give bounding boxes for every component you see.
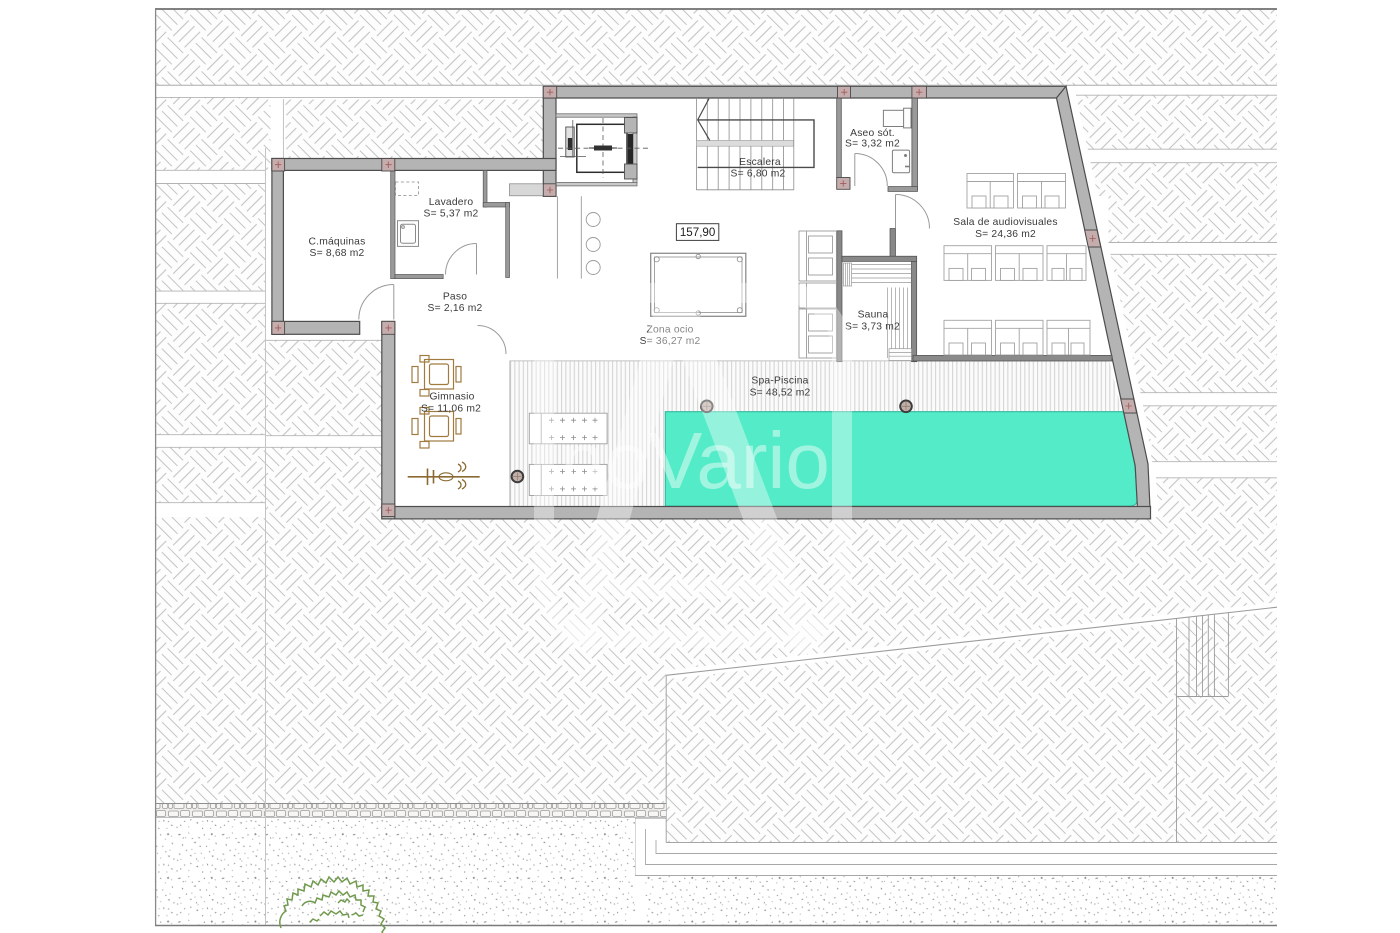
svg-text:S= 8,68 m2: S= 8,68 m2: [310, 248, 365, 259]
svg-text:S= 11,06 m2: S= 11,06 m2: [421, 404, 481, 415]
svg-text:Aseo sót.: Aseo sót.: [850, 128, 895, 139]
svg-text:Gimnasio: Gimnasio: [429, 392, 474, 403]
svg-text:S= 3,32 m2: S= 3,32 m2: [845, 139, 900, 150]
svg-text:C.máquinas: C.máquinas: [309, 237, 366, 248]
svg-text:S= 24,36 m2: S= 24,36 m2: [975, 229, 1036, 240]
svg-text:Sauna: Sauna: [858, 310, 889, 321]
svg-text:Paso: Paso: [443, 292, 467, 303]
svg-text:S= 5,37 m2: S= 5,37 m2: [424, 209, 479, 220]
svg-text:S= 6,80 m2: S= 6,80 m2: [731, 169, 786, 180]
svg-text:Lavadero: Lavadero: [429, 197, 474, 208]
svg-text:S= 3,73 m2: S= 3,73 m2: [845, 322, 900, 333]
svg-text:157,90: 157,90: [680, 226, 715, 239]
svg-text:noVario: noVario: [560, 416, 830, 505]
svg-text:Sala de audiovisuales: Sala de audiovisuales: [953, 217, 1057, 228]
svg-text:S= 48,52 m2: S= 48,52 m2: [750, 388, 811, 399]
svg-text:S= 2,16 m2: S= 2,16 m2: [428, 303, 483, 314]
svg-text:Spa-Piscina: Spa-Piscina: [751, 376, 808, 387]
svg-text:Escalera: Escalera: [739, 157, 781, 168]
